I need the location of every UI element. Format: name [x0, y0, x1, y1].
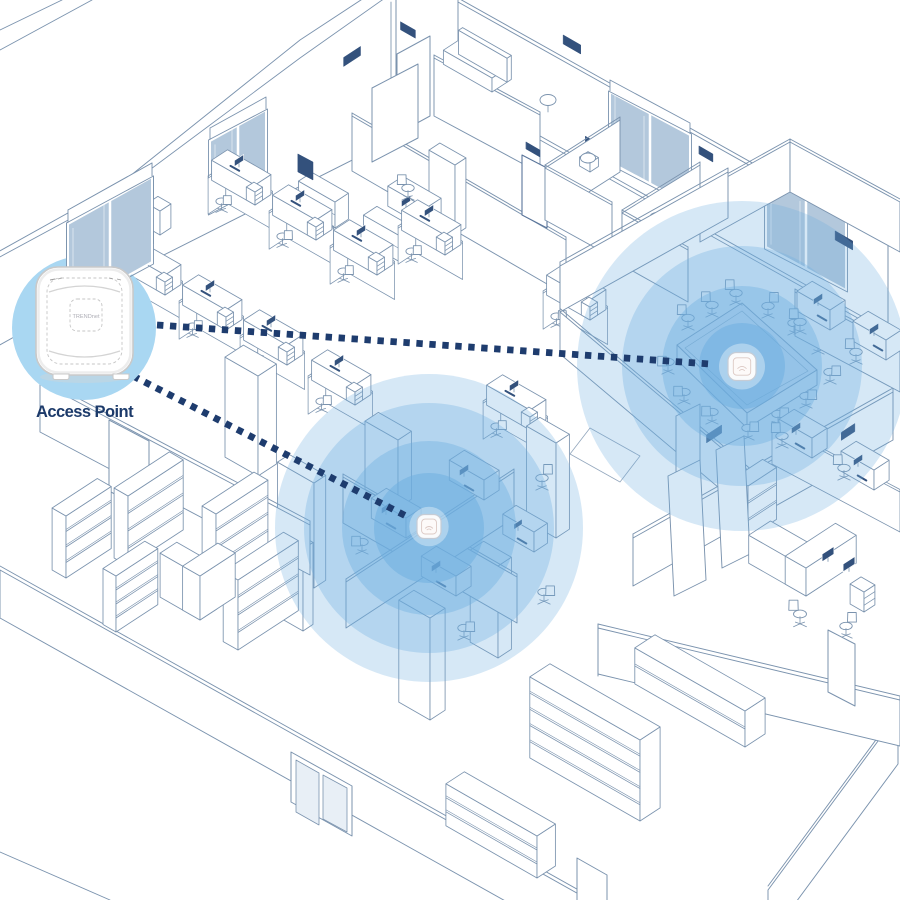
svg-text:TRENDnet: TRENDnet: [72, 314, 99, 320]
svg-text:Access Point: Access Point: [36, 403, 134, 421]
